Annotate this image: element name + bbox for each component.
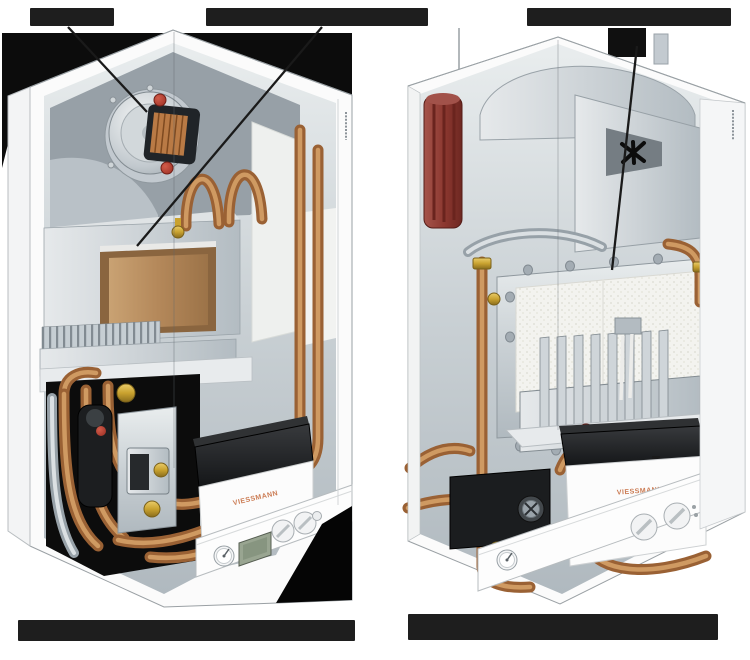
redacted-top-label-3 bbox=[527, 8, 731, 26]
red-cap-bottom bbox=[161, 162, 173, 174]
left-boiler-cutaway: VIESSMANN bbox=[2, 30, 352, 607]
left-pressure-gauge bbox=[214, 546, 234, 566]
redacted-caption-right bbox=[408, 614, 718, 640]
left-gas-valve-coil bbox=[130, 454, 149, 490]
right-condensate-siphon bbox=[424, 93, 462, 228]
right-boiler-cutaway: VIESSMANN bbox=[408, 28, 745, 604]
right-pressure-gauge bbox=[497, 550, 517, 570]
redacted-caption-left bbox=[18, 620, 355, 641]
right-flue-outlet bbox=[608, 28, 646, 57]
brass-bolt bbox=[154, 463, 168, 477]
right-knob-1 bbox=[631, 514, 657, 540]
boiler-cutaway-figure: VIESSMANN bbox=[0, 0, 750, 660]
red-cap-top bbox=[154, 94, 166, 106]
right-side-panel-left bbox=[408, 86, 420, 541]
right-side-panel-right bbox=[700, 99, 745, 529]
red-knob bbox=[96, 426, 106, 436]
redacted-top-label-1 bbox=[30, 8, 114, 26]
right-knob-2 bbox=[664, 503, 690, 529]
brass-union bbox=[473, 258, 491, 269]
redacted-top-label-2 bbox=[206, 8, 428, 26]
brass-hex-upper bbox=[117, 384, 135, 402]
illustration-canvas: VIESSMANN bbox=[0, 0, 750, 660]
left-small-button bbox=[313, 512, 322, 521]
brass-valve-small bbox=[488, 293, 500, 305]
left-side-panel bbox=[8, 87, 30, 546]
left-knob-1 bbox=[272, 520, 294, 542]
brass-hex-lower bbox=[144, 501, 160, 517]
